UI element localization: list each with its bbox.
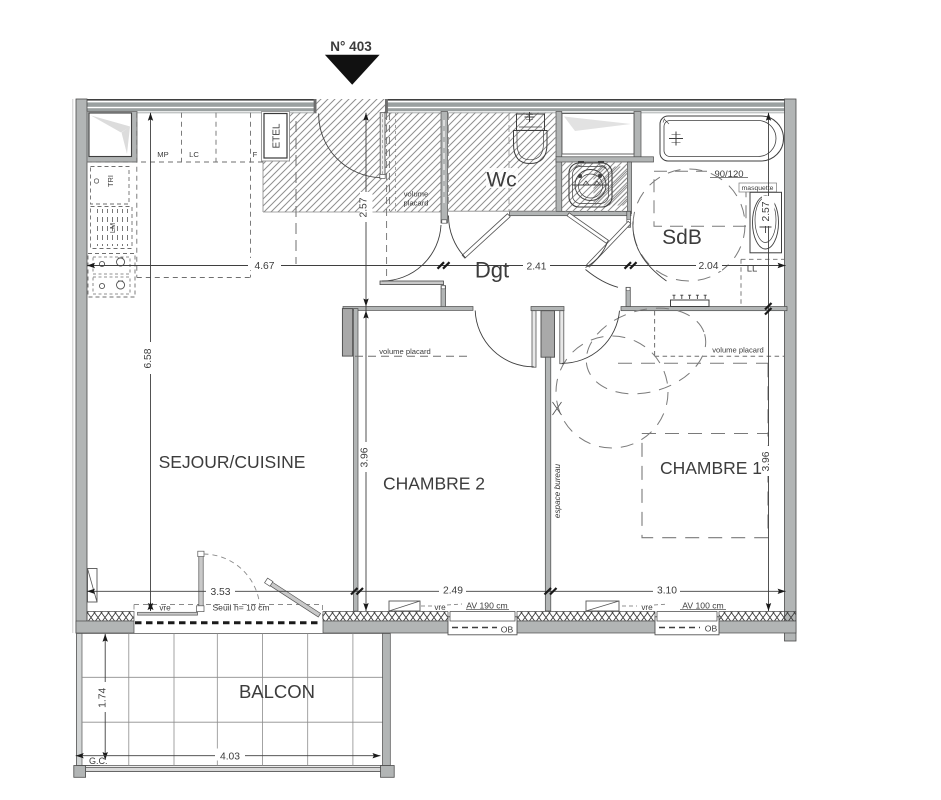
svg-text:3.96: 3.96	[761, 451, 772, 471]
svg-text:SdB: SdB	[662, 226, 702, 249]
svg-text:Dgt: Dgt	[475, 258, 509, 283]
svg-text:volume placard: volume placard	[712, 346, 764, 355]
svg-text:volume: volume	[404, 190, 428, 199]
svg-text:3.96: 3.96	[359, 447, 370, 467]
svg-text:LC: LC	[189, 150, 199, 159]
svg-text:6.58: 6.58	[143, 348, 154, 368]
svg-text:espace bureau: espace bureau	[553, 463, 562, 518]
svg-text:F: F	[253, 150, 258, 159]
svg-text:OB: OB	[501, 625, 514, 635]
svg-text:AV 100 cm: AV 100 cm	[682, 601, 723, 611]
svg-text:ETEL: ETEL	[272, 123, 283, 148]
svg-text:3.53: 3.53	[210, 587, 230, 598]
svg-text:N° 403: N° 403	[330, 39, 372, 54]
svg-text:4.67: 4.67	[254, 261, 274, 272]
svg-text:TRI: TRI	[106, 175, 115, 187]
svg-text:placard: placard	[404, 199, 429, 208]
svg-text:LM: LM	[108, 223, 117, 233]
svg-text:BALCON: BALCON	[239, 681, 315, 702]
svg-text:O: O	[92, 178, 101, 184]
svg-text:2.57: 2.57	[761, 201, 772, 221]
svg-text:2.49: 2.49	[443, 585, 463, 596]
svg-text:2.41: 2.41	[526, 261, 546, 272]
svg-text:SEJOUR/CUISINE: SEJOUR/CUISINE	[159, 452, 306, 472]
svg-text:vre: vre	[434, 603, 446, 612]
svg-text:MP: MP	[157, 150, 168, 159]
svg-text:vre: vre	[641, 603, 653, 612]
svg-text:OB: OB	[705, 624, 718, 634]
svg-text:volume placard: volume placard	[379, 347, 431, 356]
svg-text:CHAMBRE 1: CHAMBRE 1	[660, 458, 762, 478]
svg-text:3.10: 3.10	[657, 585, 677, 596]
svg-text:2.57: 2.57	[358, 197, 369, 217]
svg-text:4.03: 4.03	[220, 752, 240, 763]
svg-text:Wc: Wc	[486, 169, 516, 192]
svg-text:CHAMBRE 2: CHAMBRE 2	[383, 474, 485, 494]
svg-text:AV 190 cm: AV 190 cm	[466, 601, 507, 611]
svg-text:Seuil h= 10 cm: Seuil h= 10 cm	[212, 603, 269, 613]
svg-text:2.04: 2.04	[698, 261, 718, 272]
svg-text:1.74: 1.74	[97, 688, 108, 708]
svg-text:vre: vre	[159, 604, 171, 613]
